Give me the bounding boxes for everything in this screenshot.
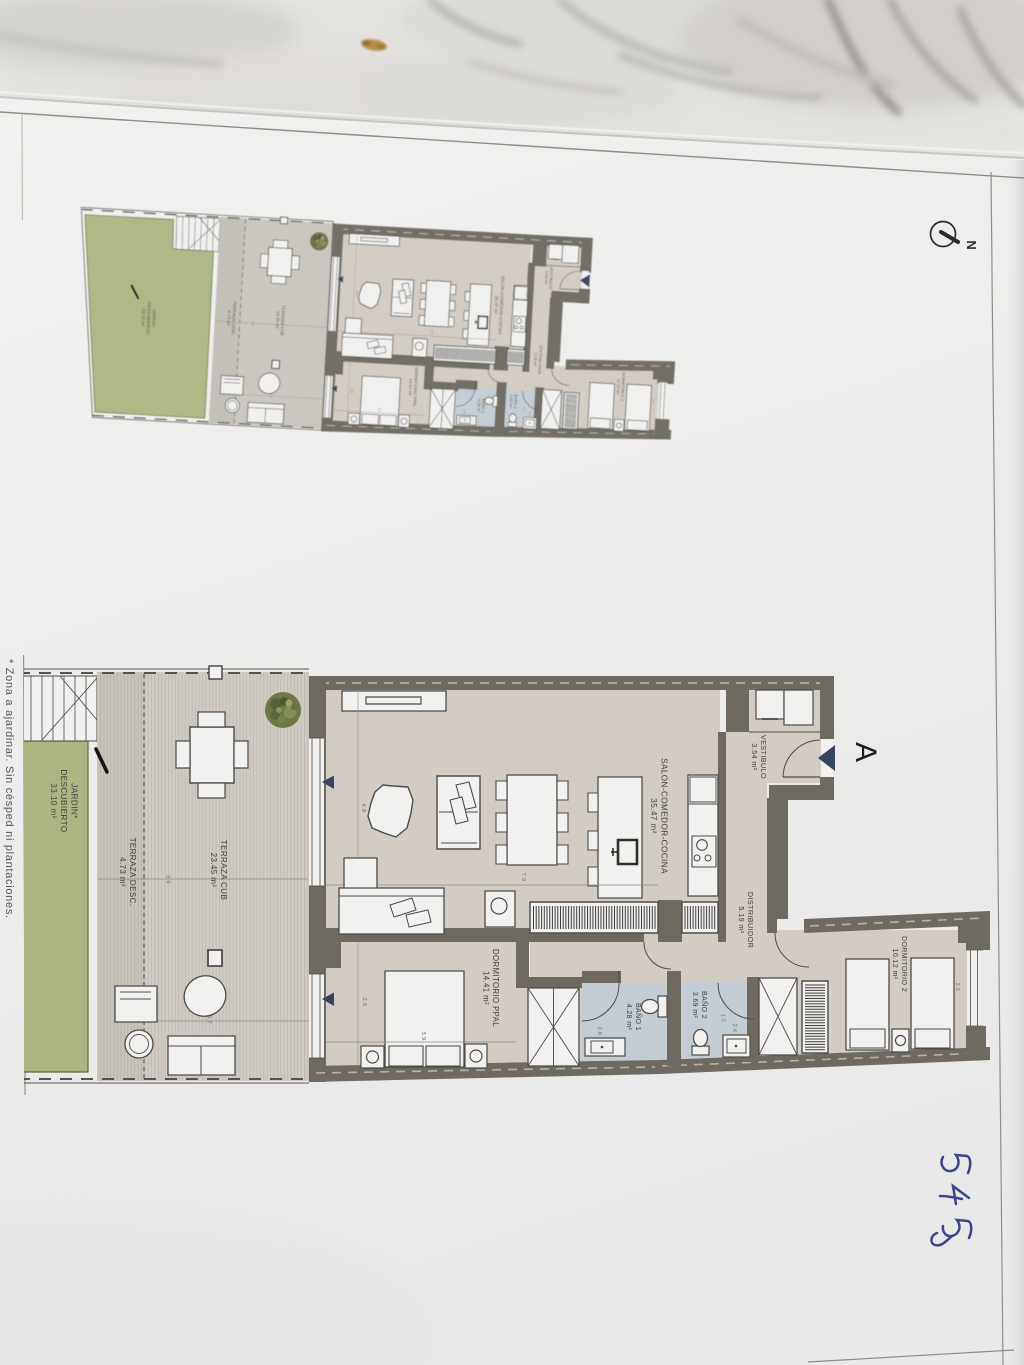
svg-text:3.6: 3.6 [165, 875, 171, 884]
svg-text:BAÑO 23.69 m²: BAÑO 23.69 m² [691, 991, 709, 1019]
svg-text:2.8: 2.8 [596, 1027, 602, 1035]
svg-text:BAÑO 23.69 m²: BAÑO 23.69 m² [508, 394, 518, 409]
svg-text:3.6: 3.6 [251, 321, 255, 326]
svg-text:N: N [964, 240, 979, 249]
svg-text:2.6: 2.6 [651, 398, 655, 403]
svg-text:2.6: 2.6 [361, 998, 367, 1007]
svg-text:7.9: 7.9 [520, 873, 526, 882]
svg-text:2.6: 2.6 [954, 983, 960, 991]
svg-text:3.9: 3.9 [377, 407, 381, 412]
svg-text:BAÑO 14.28 m²: BAÑO 14.28 m² [476, 398, 486, 413]
svg-text:BAÑO 14.28 m²: BAÑO 14.28 m² [625, 1003, 643, 1031]
svg-text:* Zona a ajardinar. Sin césped: * Zona a ajardinar. Sin césped ni planta… [3, 659, 15, 919]
svg-text:7.9: 7.9 [430, 330, 434, 335]
svg-text:2.8: 2.8 [462, 410, 466, 415]
svg-text:2.4: 2.4 [731, 1024, 737, 1032]
svg-text:3.9: 3.9 [420, 1032, 426, 1041]
svg-text:4.8: 4.8 [360, 804, 366, 813]
svg-text:4.8: 4.8 [355, 291, 359, 296]
svg-text:1.5: 1.5 [522, 406, 526, 411]
svg-text:1.5: 1.5 [720, 1014, 726, 1022]
svg-text:A: A [849, 742, 882, 762]
svg-text:2.4: 2.4 [528, 412, 532, 417]
svg-text:2.6: 2.6 [350, 388, 354, 393]
